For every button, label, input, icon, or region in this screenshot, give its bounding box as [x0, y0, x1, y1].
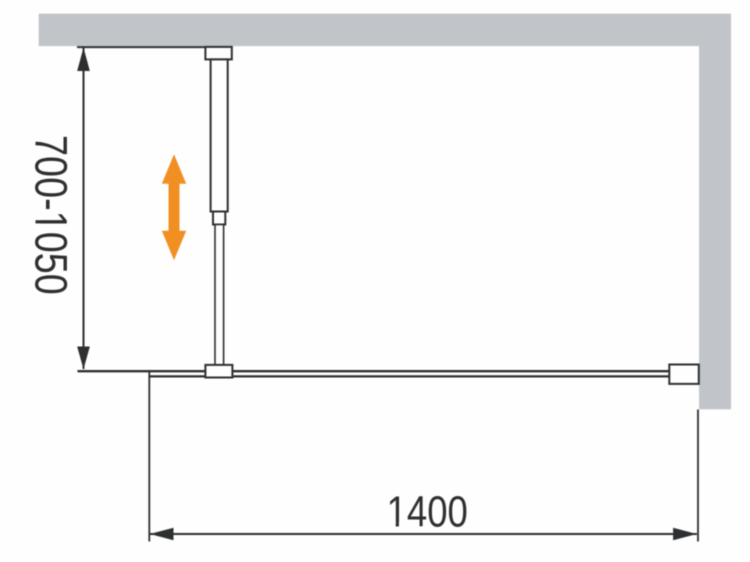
svg-text:1400: 1400: [387, 486, 468, 536]
svg-text:700-1050: 700-1050: [26, 135, 77, 295]
